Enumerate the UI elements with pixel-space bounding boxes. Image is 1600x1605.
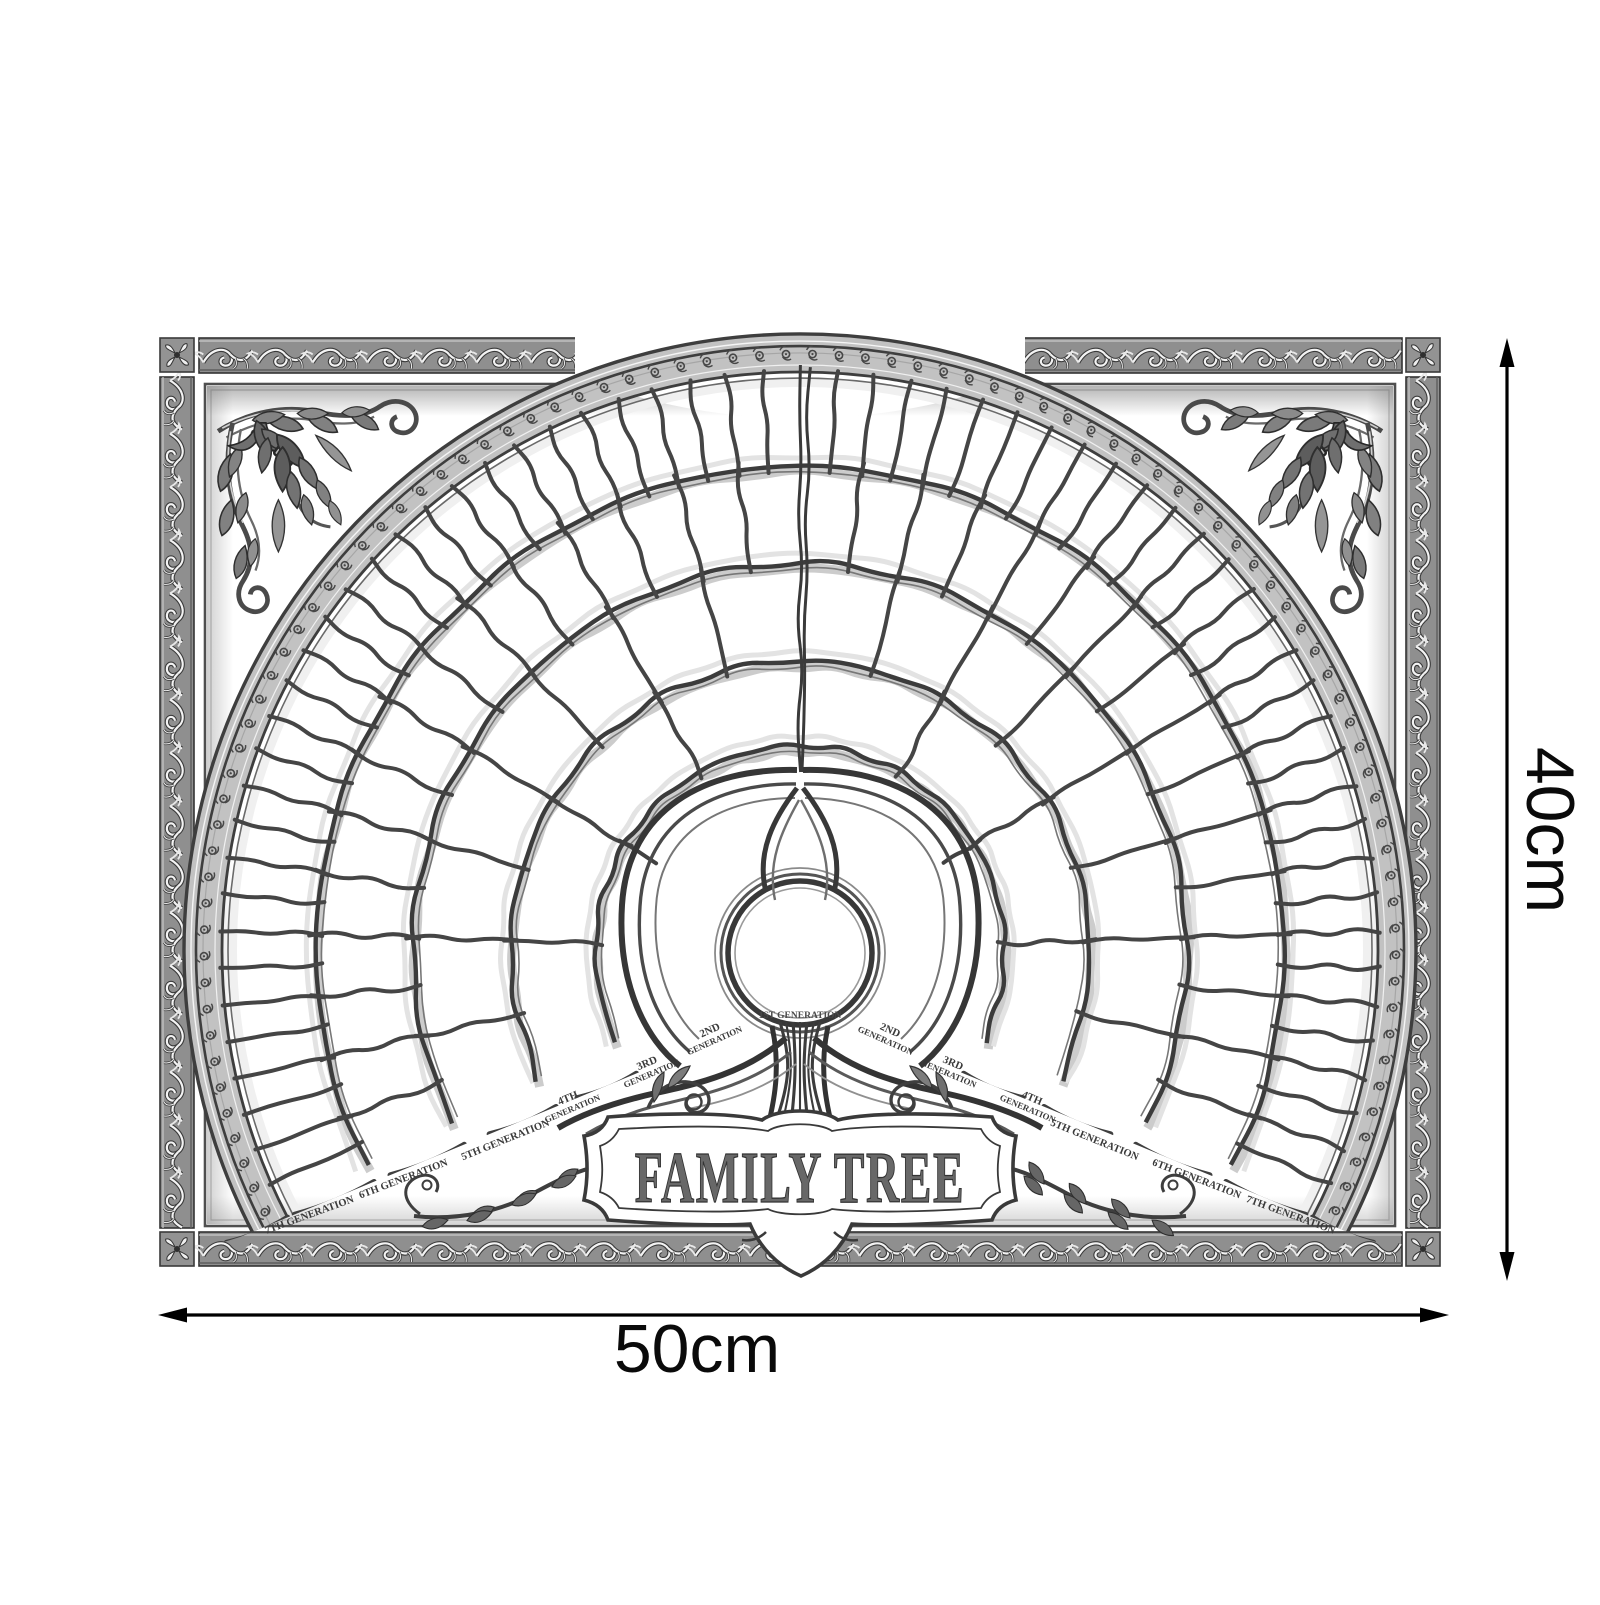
svg-text:FAMILY TREE: FAMILY TREE [635, 1139, 966, 1219]
svg-text:50cm: 50cm [614, 1311, 780, 1387]
svg-text:40cm: 40cm [1512, 747, 1588, 913]
svg-text:1ST GENERATION: 1ST GENERATION [759, 1011, 842, 1021]
